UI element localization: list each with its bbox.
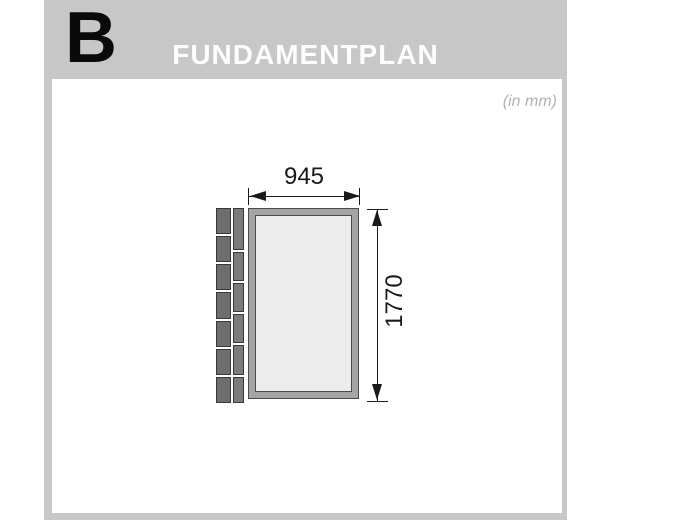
foundation-inner-area (255, 215, 352, 392)
wall-plank (216, 236, 231, 262)
foundation-frame (248, 208, 359, 399)
wall-plank (233, 345, 244, 374)
wall-plank (233, 283, 244, 312)
arrow-right-icon (344, 191, 360, 201)
page: B FUNDAMENTPLAN (in mm) 945 (0, 0, 700, 525)
foundation-plan-figure: 945 1770 (52, 79, 562, 513)
wall-plank (233, 377, 244, 404)
wall-plank (216, 349, 231, 375)
wall-plank-column-outer (216, 208, 231, 403)
arrow-left-icon (250, 191, 266, 201)
height-dimension-line (377, 209, 378, 402)
height-dimension-label: 1770 (383, 241, 407, 361)
wall-plank (216, 292, 231, 318)
wall-plank (216, 264, 231, 290)
page-title: FUNDAMENTPLAN (44, 41, 567, 69)
wall-plank (216, 321, 231, 347)
wall-plank (216, 208, 231, 234)
drawing-sheet: (in mm) 945 (52, 79, 562, 513)
section-panel: B FUNDAMENTPLAN (in mm) 945 (44, 0, 567, 520)
wall-plank (233, 314, 244, 343)
arrow-up-icon (372, 210, 382, 226)
wall-plank (216, 377, 231, 403)
wall-plank (233, 252, 244, 281)
arrow-down-icon (372, 384, 382, 400)
width-dimension-label: 945 (248, 165, 360, 189)
wall-plank-column-inner (233, 208, 244, 403)
wall-plank (233, 208, 244, 250)
